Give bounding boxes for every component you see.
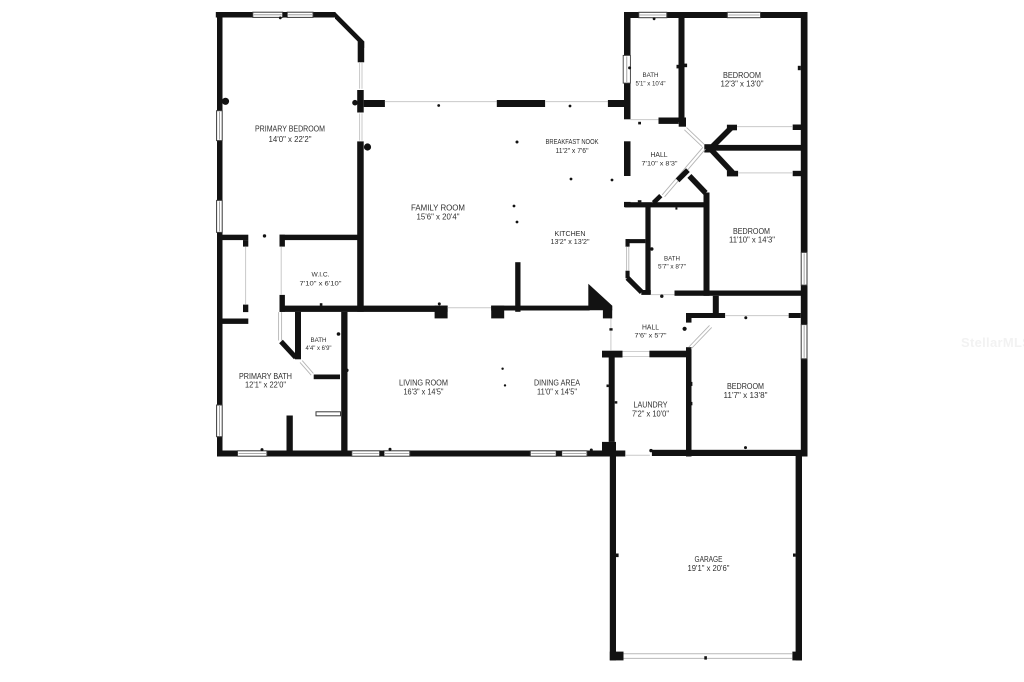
svg-text:LIVING ROOM: LIVING ROOM [399,377,448,387]
svg-text:BATH: BATH [311,337,327,344]
svg-text:BREAKFAST NOOK: BREAKFAST NOOK [546,137,599,146]
svg-text:7'2" x 10'0": 7'2" x 10'0" [632,409,669,418]
svg-text:19'1" x 20'6": 19'1" x 20'6" [688,564,730,573]
svg-text:7'6" x 5'7": 7'6" x 5'7" [635,332,668,339]
svg-text:BEDROOM: BEDROOM [723,70,761,80]
svg-text:PRIMARY BEDROOM: PRIMARY BEDROOM [255,124,325,134]
svg-text:FAMILY ROOM: FAMILY ROOM [411,202,465,212]
svg-text:15'6" x 20'4": 15'6" x 20'4" [417,212,460,221]
svg-text:7'10" x 6'10": 7'10" x 6'10" [300,281,343,288]
svg-text:W.I.C.: W.I.C. [312,271,330,278]
svg-text:LAUNDRY: LAUNDRY [634,400,668,410]
svg-text:11'2" x 7'6": 11'2" x 7'6" [556,148,589,155]
svg-text:HALL: HALL [642,324,659,331]
svg-text:PRIMARY BATH: PRIMARY BATH [239,371,292,381]
svg-text:DINING AREA: DINING AREA [534,377,580,387]
svg-text:BATH: BATH [664,255,680,262]
svg-text:11'10" x 14'3": 11'10" x 14'3" [729,236,775,245]
svg-text:GARAGE: GARAGE [695,554,723,564]
svg-text:5'7" x 8'7": 5'7" x 8'7" [658,263,686,270]
svg-text:14'0" x 22'2": 14'0" x 22'2" [269,135,312,144]
svg-text:BATH: BATH [643,72,659,79]
svg-text:12'3" x 13'0": 12'3" x 13'0" [721,80,764,89]
svg-text:HALL: HALL [651,152,668,159]
svg-text:4'4" x 6'9": 4'4" x 6'9" [306,345,332,352]
svg-text:12'1" x 22'0": 12'1" x 22'0" [245,380,286,389]
svg-text:5'1" x 10'4": 5'1" x 10'4" [636,80,666,87]
svg-text:StellarMLS: StellarMLS [961,335,1024,350]
svg-text:13'2" x 13'2": 13'2" x 13'2" [551,237,590,246]
svg-text:7'10" x 8'3": 7'10" x 8'3" [642,161,679,168]
svg-text:BEDROOM: BEDROOM [733,226,770,236]
svg-text:BEDROOM: BEDROOM [727,381,764,391]
svg-text:16'3" x 14'5": 16'3" x 14'5" [404,388,444,397]
svg-text:11'0" x 14'5": 11'0" x 14'5" [537,388,577,397]
svg-text:11'7" x 13'8": 11'7" x 13'8" [724,391,768,400]
